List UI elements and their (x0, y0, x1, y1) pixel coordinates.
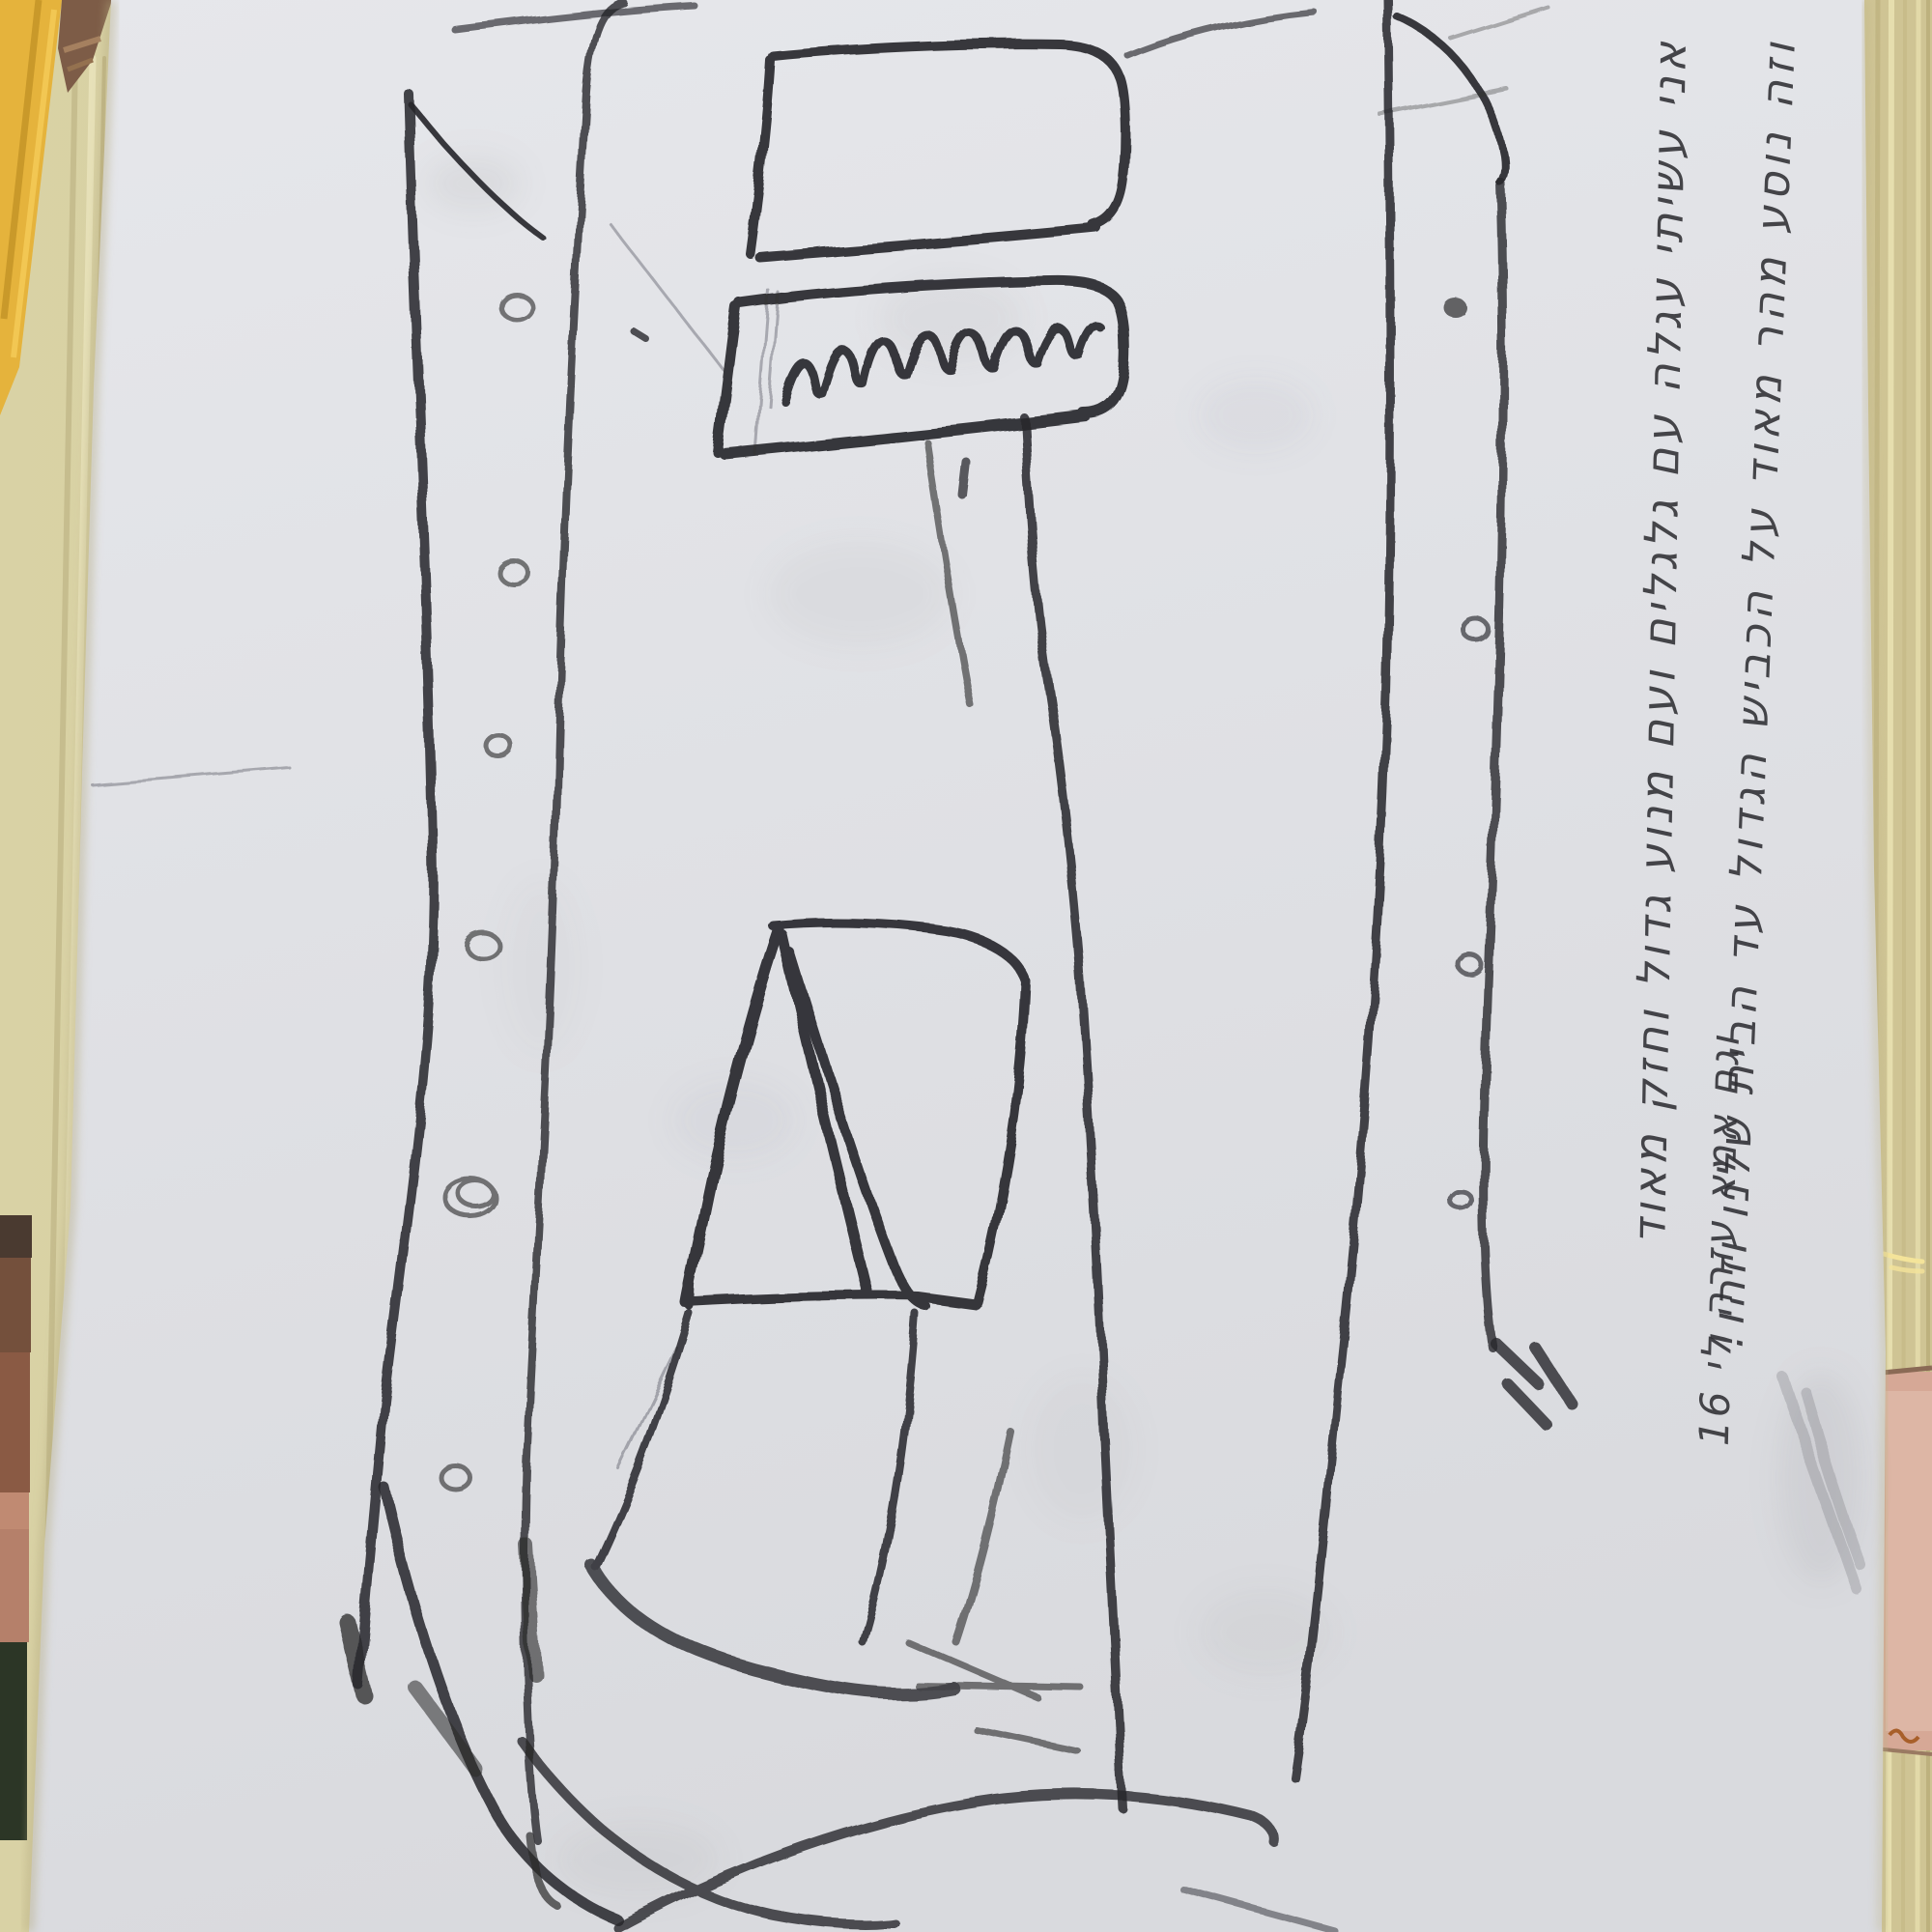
inner-left-dark-segment (526, 1546, 534, 1673)
photographed-drawing: אני עשיתי עגלה עם גלגלים ועם מנוע גדול ו… (0, 0, 1932, 1932)
photo-canvas: אני עשיתי עגלה עם גלגלים ועם מנוע גדול ו… (0, 0, 1932, 1932)
